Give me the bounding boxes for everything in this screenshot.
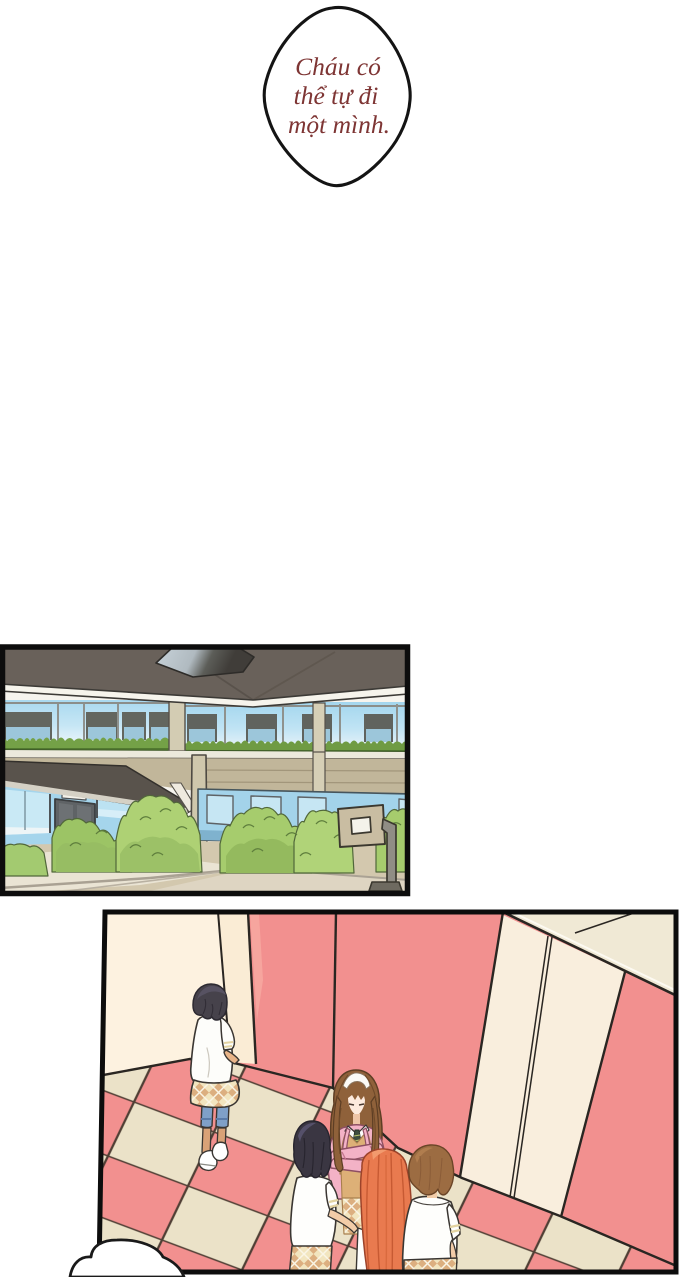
svg-text:một mình.: một mình. [288, 110, 390, 139]
svg-text:Cháu có: Cháu có [295, 52, 381, 81]
svg-text:thể tự đi: thể tự đi [294, 81, 379, 110]
